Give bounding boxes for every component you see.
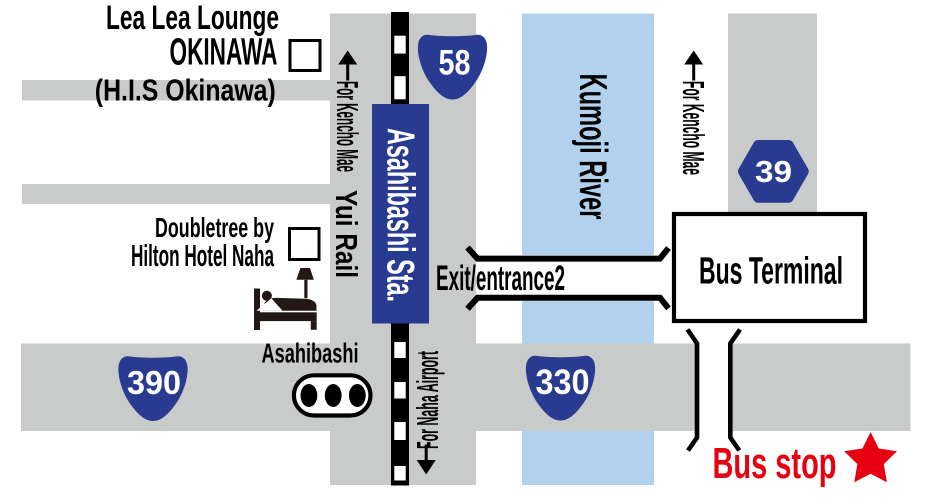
- svg-text:Asahibashi: Asahibashi: [262, 338, 359, 369]
- svg-text:For Kencho Mae: For Kencho Mae: [676, 81, 711, 175]
- svg-text:Asahibashi Sta.: Asahibashi Sta.: [379, 128, 422, 302]
- svg-text:390: 390: [127, 365, 181, 402]
- svg-text:(H.I.S Okinawa): (H.I.S Okinawa): [95, 73, 276, 108]
- svg-text:Exit/entrance2: Exit/entrance2: [436, 259, 565, 298]
- svg-text:Bus stop: Bus stop: [713, 439, 837, 488]
- svg-text:For Kencho Mae: For Kencho Mae: [330, 81, 365, 172]
- svg-text:Bus Terminal: Bus Terminal: [699, 250, 843, 292]
- svg-text:58: 58: [439, 43, 471, 83]
- svg-text:For Naha Airport: For Naha Airport: [410, 351, 445, 449]
- svg-text:OKINAWA: OKINAWA: [170, 32, 278, 74]
- svg-text:Kumoji River: Kumoji River: [571, 74, 614, 220]
- svg-text:39: 39: [755, 154, 792, 189]
- svg-text:Hilton Hotel Naha: Hilton Hotel Naha: [131, 239, 275, 273]
- svg-text:Yui Rail: Yui Rail: [329, 190, 364, 278]
- svg-text:330: 330: [536, 363, 590, 402]
